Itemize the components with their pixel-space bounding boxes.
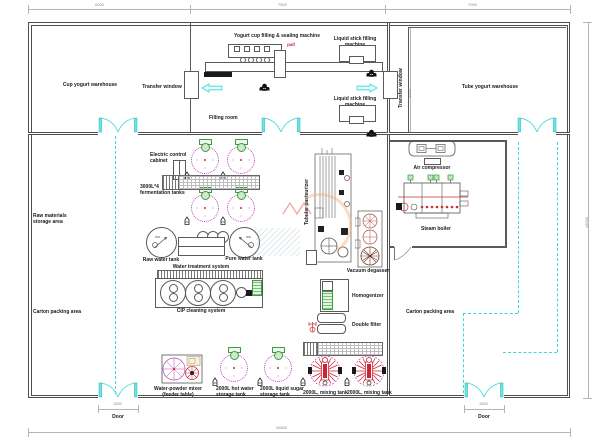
dimension-value: 7500	[278, 3, 287, 7]
sealing-head	[274, 50, 286, 78]
partition-dashed	[115, 136, 116, 394]
cip-tank-icon	[160, 280, 186, 306]
wall-band	[28, 132, 98, 135]
filter-valve-icon	[308, 321, 317, 339]
double-door-icon	[517, 117, 557, 138]
fermentation-tank-icon	[191, 194, 219, 222]
machine-detail	[254, 46, 260, 52]
dimension-tick	[583, 398, 592, 399]
water-powder-mixer-label: Water-powder mixer (feeder table)	[152, 386, 204, 399]
yogurt-cup-machine-label: Yogurt cup filling & sealing machine	[212, 33, 342, 39]
dimension-tick	[98, 405, 99, 413]
double-door-icon	[464, 382, 504, 403]
cip-tank-icon	[185, 280, 211, 306]
machine-red-note: pall	[284, 42, 298, 48]
air-compressor-base	[424, 158, 441, 165]
pure-water-tank-label: Pure water tank	[224, 256, 264, 262]
raw-water-tank-icon	[146, 227, 177, 258]
vacuum-degasser-label: Vacuum degasser	[344, 268, 392, 274]
door-label: Door	[464, 414, 504, 420]
steam-boiler-icon	[396, 174, 474, 229]
machine-detail	[349, 56, 364, 64]
air-compressor-label: Air compressor	[410, 165, 454, 171]
factory-floor-plan: 6000 7500 7000 15000 4000 26500 1500 Doo…	[0, 0, 600, 442]
mixing-tank-label: 2000L, mixing tank	[347, 390, 395, 396]
machine-platform	[204, 72, 232, 77]
transfer-window-left-label: Transfer window	[141, 84, 183, 90]
fermentation-tank-icon	[227, 194, 255, 222]
water-treatment-unit	[178, 246, 225, 256]
machine-detail	[349, 116, 364, 124]
dimension-line-top-right	[385, 9, 570, 10]
machine-detail	[244, 46, 250, 52]
transfer-window-left-hatch	[184, 71, 199, 99]
dimension-tick	[464, 405, 465, 413]
homogenizer-detail	[322, 281, 333, 291]
dimension-value: 6000	[95, 3, 104, 7]
hot-water-tank-icon	[220, 354, 248, 382]
homogenizer-label: Homogenizer	[352, 293, 388, 299]
operator-icon	[366, 64, 377, 82]
dimension-tick	[28, 5, 29, 14]
wall-band	[138, 132, 262, 135]
vacuum-degasser-icon	[355, 210, 383, 273]
room-label-tube-warehouse: Tube yogurt warehouse	[445, 84, 535, 90]
double-door-icon	[98, 382, 138, 403]
water-powder-mixer-icon	[161, 354, 203, 389]
dimension-tick	[504, 405, 505, 413]
dimension-line-door-right	[464, 409, 504, 410]
double-filter-label: Double filter	[352, 322, 388, 328]
wall-band	[556, 132, 570, 135]
wall-tube-warehouse-left	[408, 27, 409, 133]
dimension-value: 15000	[585, 217, 589, 228]
room-label-filling-room: Filling room	[209, 115, 253, 121]
transfer-window-right-label: Transfer window	[398, 65, 404, 111]
valve-icon	[300, 373, 306, 391]
valve-icon	[184, 212, 190, 230]
steam-boiler-label: Steam boiler	[416, 226, 456, 232]
dimension-line-right	[588, 22, 589, 398]
liquid-sugar-tank-icon	[264, 354, 292, 382]
dimension-line-door-left	[98, 409, 138, 410]
dimension-value: 7000	[468, 3, 477, 7]
dimension-tick	[190, 5, 191, 14]
arrow-left-icon	[201, 80, 223, 98]
room-label-raw-materials: Raw materials storage area	[33, 213, 77, 226]
double-door-icon	[98, 117, 138, 138]
boiler-room-door-icon	[393, 247, 412, 268]
door-label: Door	[98, 414, 138, 420]
dimension-tick	[138, 405, 139, 413]
dimension-line-bottom	[28, 432, 570, 433]
operator-icon	[366, 124, 377, 142]
transfer-window-right-hatch	[383, 71, 398, 99]
cip-tank-icon	[210, 280, 236, 306]
fermentation-tank-icon	[191, 146, 219, 174]
hot-water-tank-label: 2000L hot water storage tank	[216, 386, 260, 399]
machine-detail	[264, 46, 270, 52]
fermentation-tank-icon	[227, 146, 255, 174]
homogenizer-detail	[322, 291, 333, 310]
mixing-tank-icon	[352, 354, 386, 393]
room-label-carton-packing-left: Carton packing area	[33, 309, 93, 315]
room-label-carton-packing-right: Carton packing area	[406, 309, 466, 315]
partition-dashed	[463, 313, 464, 393]
cip-panel	[252, 280, 262, 296]
partition-dashed	[463, 313, 518, 314]
machine-detail	[234, 46, 240, 52]
wall-tube-warehouse-top	[408, 27, 566, 28]
operator-icon	[259, 78, 270, 96]
partition-dashed	[503, 352, 557, 353]
partition-dashed	[518, 142, 519, 313]
partition-dashed	[557, 142, 558, 352]
dimension-line-top-left	[28, 9, 190, 10]
wall-boiler-room-right	[505, 140, 507, 248]
dimension-tick	[570, 5, 571, 14]
valve-icon	[220, 212, 226, 230]
dimension-tick	[385, 5, 386, 14]
double-door-icon	[261, 117, 301, 138]
room-label-cup-warehouse: Cup yogurt warehouse	[50, 82, 130, 88]
dimension-value: 26500	[276, 426, 287, 430]
mixing-tank-icon	[308, 354, 342, 393]
dimension-tick	[570, 428, 571, 437]
wall-band	[300, 132, 518, 135]
valve-icon	[344, 373, 350, 391]
wall-boiler-room-bottom	[412, 246, 506, 248]
dimension-tick	[583, 22, 592, 23]
raw-water-tank-label: Raw water tank	[140, 257, 182, 263]
double-filter-icon	[317, 313, 346, 323]
cip-label: CIP cleaning system	[172, 308, 230, 314]
dimension-tick	[28, 428, 29, 437]
double-filter-icon	[317, 324, 346, 334]
wall-hall-divider	[387, 135, 390, 396]
conveyor-belt	[178, 175, 260, 190]
dimension-line-top-middle	[190, 9, 385, 10]
